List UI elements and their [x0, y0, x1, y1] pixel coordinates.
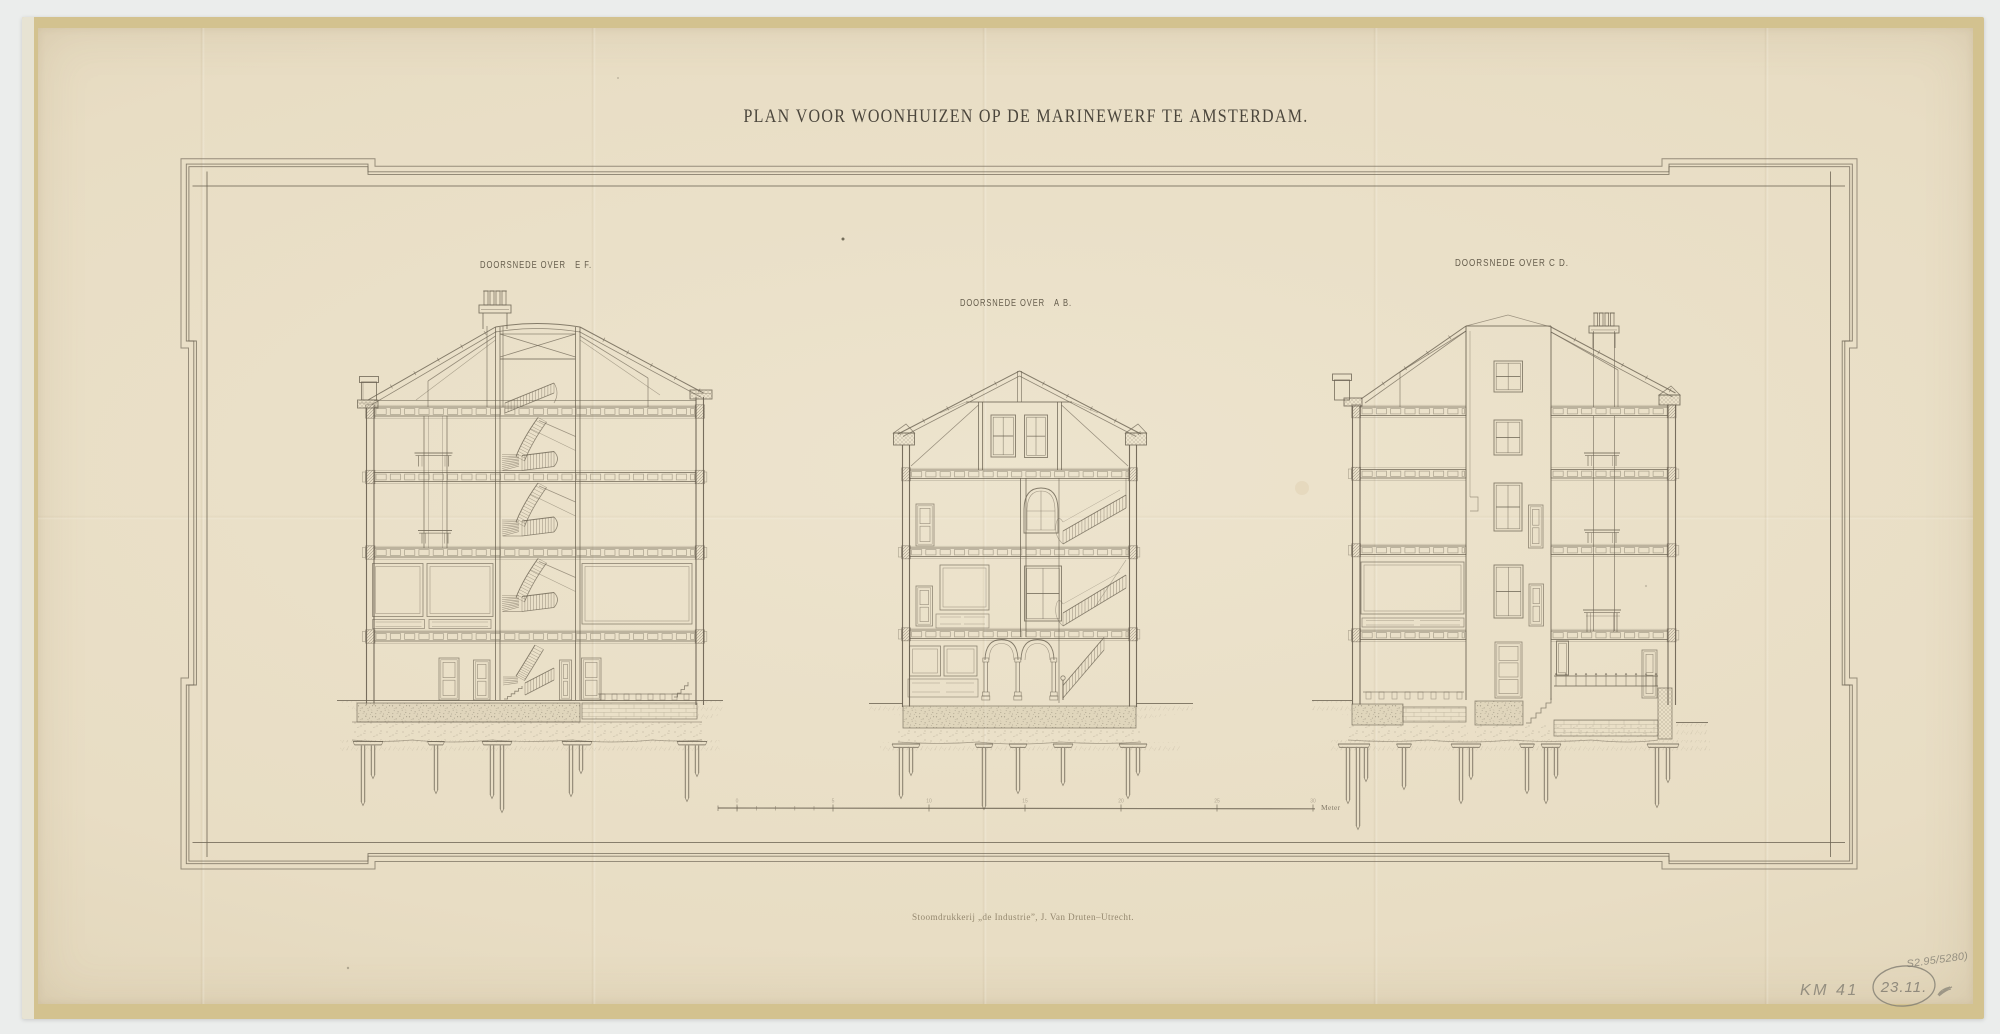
svg-text:15: 15	[1022, 799, 1028, 805]
svg-text:0: 0	[736, 799, 739, 805]
svg-text:KM 41: KM 41	[1800, 982, 1859, 999]
svg-text:30: 30	[1310, 799, 1316, 805]
svg-text:25: 25	[1214, 799, 1220, 805]
svg-text:Meter: Meter	[1321, 803, 1341, 812]
svg-text:DOORSNEDE OVER E F.: DOORSNEDE OVER E F.	[480, 260, 592, 271]
svg-text:23.11.: 23.11.	[1880, 979, 1928, 996]
svg-text:Stoomdrukkerij „de Industrie”,: Stoomdrukkerij „de Industrie”, J. Van Dr…	[912, 913, 1134, 923]
svg-text:PLAN VOOR WOONHUIZEN OP DE MAR: PLAN VOOR WOONHUIZEN OP DE MARINEWERF TE…	[744, 106, 1309, 127]
svg-text:10: 10	[926, 799, 932, 805]
svg-text:DOORSNEDE OVER A B.: DOORSNEDE OVER A B.	[960, 298, 1072, 309]
svg-text:DOORSNEDE OVER C D.: DOORSNEDE OVER C D.	[1455, 258, 1569, 269]
svg-text:5: 5	[832, 799, 835, 805]
svg-text:20: 20	[1118, 799, 1124, 805]
